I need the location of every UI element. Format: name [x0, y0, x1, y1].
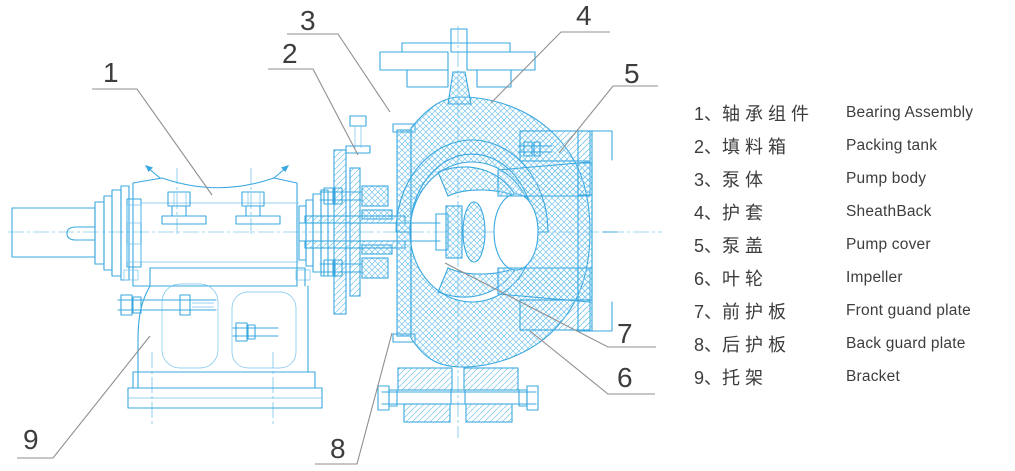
callout-1: 1	[103, 59, 119, 87]
part-label-en: Pump cover	[846, 236, 931, 254]
part-label-zh: 2、填料箱	[694, 133, 846, 159]
callout-8: 8	[330, 435, 346, 463]
part-label-en: Bracket	[846, 368, 900, 386]
legend-row: 3、泵体 Pump body	[694, 162, 1012, 195]
part-label-zh: 4、护套	[694, 199, 846, 225]
part-label-zh: 8、后护板	[694, 331, 846, 357]
legend-row: 6、叶轮 Impeller	[694, 261, 1012, 294]
discharge-flange	[380, 29, 535, 104]
callout-9: 9	[23, 426, 39, 454]
legend-row: 5、泵盖 Pump cover	[694, 228, 1012, 261]
pump-diagram-page: 1 2 3 4 5 6 7 8 9 1、轴承组件 Bearing Assembl…	[0, 0, 1015, 471]
part-label-zh: 9、托架	[694, 364, 846, 390]
part-label-en: Bearing Assembly	[846, 104, 973, 122]
callout-3: 3	[300, 7, 316, 35]
callout-4: 4	[576, 2, 592, 30]
part-label-zh: 1、轴承组件	[694, 100, 846, 126]
legend-row: 1、轴承组件 Bearing Assembly	[694, 96, 1012, 129]
part-label-en: Back guard plate	[846, 335, 966, 353]
part-label-en: Pump body	[846, 170, 926, 188]
part-label-en: SheathBack	[846, 203, 932, 221]
shaft	[12, 186, 129, 280]
legend-row: 4、护套 SheathBack	[694, 195, 1012, 228]
callout-5: 5	[624, 60, 640, 88]
part-label-zh: 7、前护板	[694, 298, 846, 324]
part-label-zh: 3、泵体	[694, 166, 846, 192]
part-label-zh: 5、泵盖	[694, 232, 846, 258]
legend-row: 7、前护板 Front guand plate	[694, 294, 1012, 327]
callout-2: 2	[282, 40, 298, 68]
part-label-en: Front guand plate	[846, 302, 971, 320]
part-label-zh: 6、叶轮	[694, 265, 846, 291]
legend-row: 9、托架 Bracket	[694, 360, 1012, 393]
part-label-en: Packing tank	[846, 137, 937, 155]
callout-7: 7	[617, 320, 633, 348]
legend-row: 2、填料箱 Packing tank	[694, 129, 1012, 162]
parts-legend: 1、轴承组件 Bearing Assembly 2、填料箱 Packing ta…	[694, 96, 1012, 393]
part-label-en: Impeller	[846, 269, 903, 287]
callout-6: 6	[617, 364, 633, 392]
legend-row: 8、后护板 Back guard plate	[694, 327, 1012, 360]
